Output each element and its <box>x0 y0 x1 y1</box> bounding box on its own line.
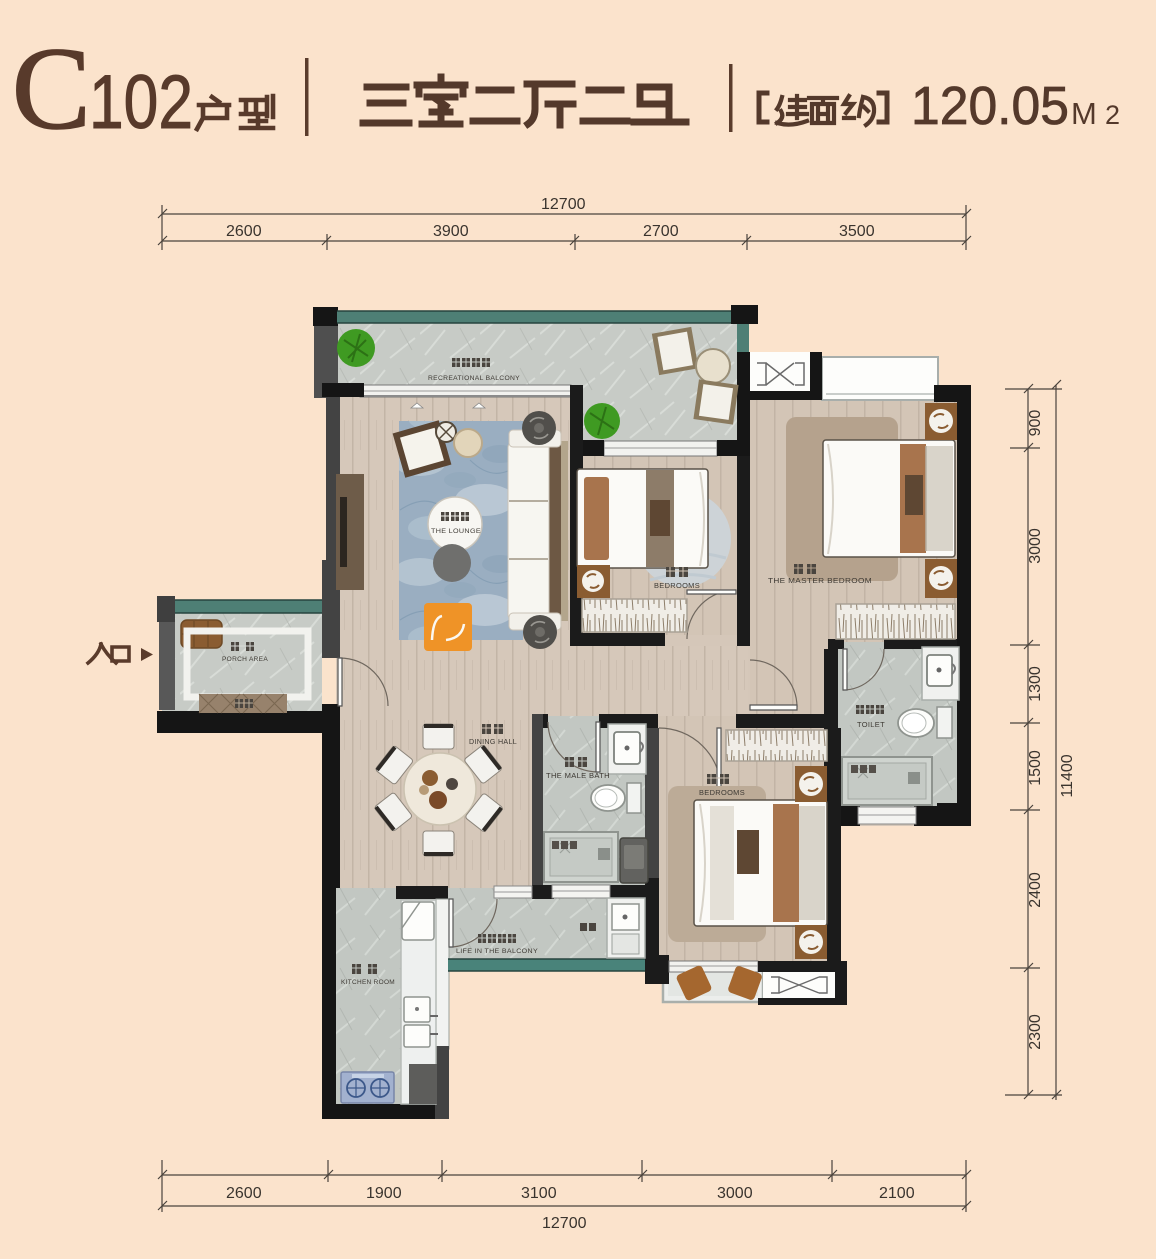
svg-text:C: C <box>12 23 91 154</box>
svg-text:900: 900 <box>1027 410 1044 437</box>
svg-text:3100: 3100 <box>521 1185 557 1202</box>
svg-text:KITCHEN ROOM: KITCHEN ROOM <box>341 979 395 986</box>
svg-text:1900: 1900 <box>366 1185 402 1202</box>
svg-text:THE MALE BATH: THE MALE BATH <box>546 773 610 780</box>
svg-text:3000: 3000 <box>1027 528 1044 564</box>
svg-text:102: 102 <box>89 60 193 145</box>
svg-text:3900: 3900 <box>433 223 469 240</box>
svg-text:DINING HALL: DINING HALL <box>469 739 517 746</box>
svg-text:RECREATIONAL BALCONY: RECREATIONAL BALCONY <box>428 375 520 382</box>
svg-text:12700: 12700 <box>541 196 586 213</box>
svg-text:LIFE IN THE BALCONY: LIFE IN THE BALCONY <box>456 948 538 955</box>
svg-text:TOILET: TOILET <box>857 722 885 729</box>
svg-text:2: 2 <box>1105 100 1120 130</box>
svg-text:2600: 2600 <box>226 1185 262 1202</box>
svg-text:120.05: 120.05 <box>911 76 1069 136</box>
svg-text:2100: 2100 <box>879 1185 915 1202</box>
svg-text:11400: 11400 <box>1059 754 1076 797</box>
svg-text:2700: 2700 <box>643 223 679 240</box>
svg-text:3000: 3000 <box>717 1185 753 1202</box>
svg-text:BEDROOMS: BEDROOMS <box>699 790 745 797</box>
svg-text:M: M <box>1071 96 1097 131</box>
svg-text:2400: 2400 <box>1027 872 1044 908</box>
svg-text:2600: 2600 <box>226 223 262 240</box>
svg-text:1300: 1300 <box>1027 666 1044 702</box>
svg-text:3500: 3500 <box>839 223 875 240</box>
svg-text:2300: 2300 <box>1027 1014 1044 1050</box>
svg-text:BEDROOMS: BEDROOMS <box>654 583 700 590</box>
svg-text:1500: 1500 <box>1027 750 1044 786</box>
svg-text:THE MASTER BEDROOM: THE MASTER BEDROOM <box>768 578 872 585</box>
svg-text:THE LOUNGE: THE LOUNGE <box>431 528 481 535</box>
svg-text:PORCH AREA: PORCH AREA <box>222 656 268 663</box>
svg-text:12700: 12700 <box>542 1215 587 1232</box>
